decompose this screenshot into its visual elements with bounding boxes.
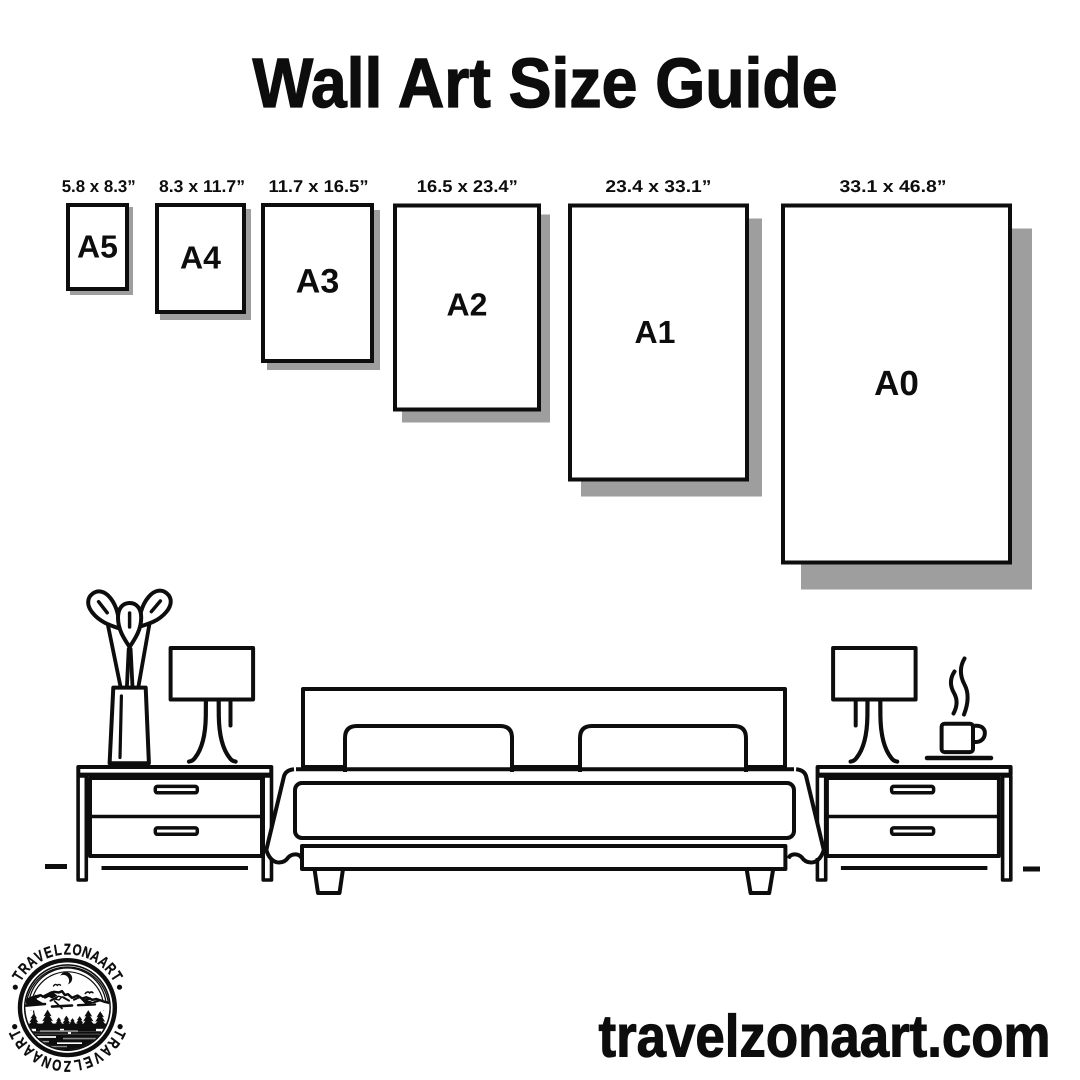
svg-text:11.7 x 16.5”: 11.7 x 16.5” [269, 177, 369, 196]
svg-text:33.1 x 46.8”: 33.1 x 46.8” [840, 177, 947, 196]
svg-text:A2: A2 [447, 287, 488, 323]
svg-text:5.8 x 8.3”: 5.8 x 8.3” [62, 177, 136, 196]
svg-text:A3: A3 [296, 263, 339, 301]
svg-text:8.3 x 11.7”: 8.3 x 11.7” [159, 177, 245, 196]
svg-text:23.4 x 33.1”: 23.4 x 33.1” [605, 177, 711, 196]
svg-text:A4: A4 [180, 240, 221, 276]
svg-text:Z: Z [63, 1057, 71, 1074]
svg-text:A5: A5 [77, 229, 118, 265]
svg-text:16.5 x 23.4”: 16.5 x 23.4” [417, 177, 518, 196]
svg-text:A0: A0 [874, 364, 919, 403]
svg-text:Z: Z [64, 941, 72, 958]
svg-text:A1: A1 [635, 314, 676, 350]
svg-text:Wall Art Size Guide: Wall Art Size Guide [253, 44, 838, 122]
svg-text:travelzonaart.com: travelzonaart.com [599, 1003, 1051, 1070]
